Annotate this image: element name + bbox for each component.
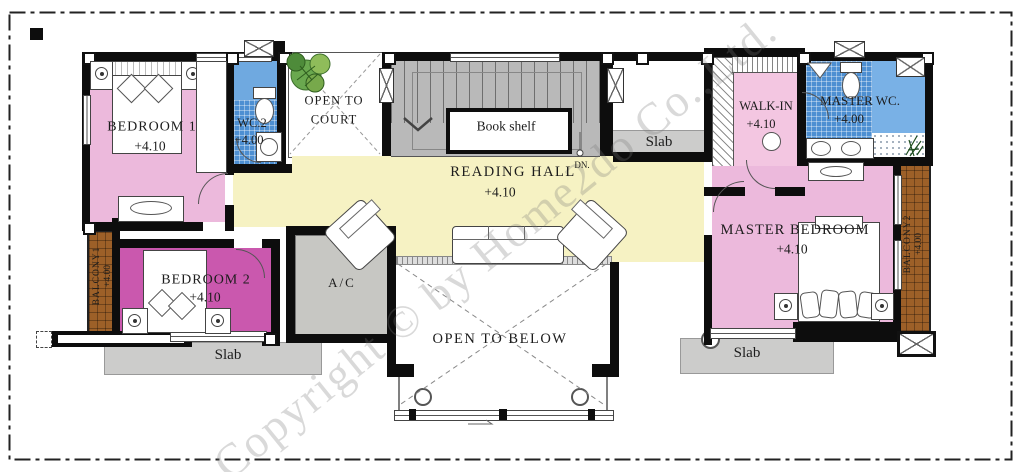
wall [271, 239, 280, 340]
floor-plan: Copyright © by Home2do Co.,Ltd. BEDROOM … [0, 0, 1024, 472]
bay-post [499, 409, 507, 420]
dresser-bowl [130, 201, 172, 215]
master-wc-dry-area [872, 133, 925, 157]
column-marker [83, 222, 96, 235]
vent-shaft-icon [379, 68, 394, 103]
master-bedroom-label: MASTER BEDROOM [721, 223, 870, 239]
wall [286, 226, 295, 343]
reading-hall-label: READING HALL [450, 165, 576, 181]
sofa-back-cushions [452, 226, 562, 240]
wall [112, 239, 234, 248]
lamp-icon [875, 299, 888, 312]
vent-shaft-icon [607, 68, 624, 103]
pillow-icon [818, 289, 839, 319]
corner-marker [30, 28, 43, 40]
dn-label: DN. [574, 161, 589, 171]
lamp-icon [95, 67, 108, 80]
wall [704, 48, 805, 57]
master-bedroom-level: +4.10 [776, 243, 807, 258]
balcony1-level: +4.00 [103, 265, 113, 287]
open-to-below-label: OPEN TO BELOW [433, 332, 568, 348]
lamp-icon [211, 314, 224, 327]
window [83, 95, 91, 145]
open-to-court-label: OPEN TO COURT [294, 91, 374, 129]
vent-shaft-icon [896, 57, 925, 77]
column-marker [601, 52, 614, 65]
walk-in-shelves-top [732, 57, 800, 73]
bed-headboard [108, 61, 186, 76]
walk-in-label: WALK-IN [739, 100, 792, 114]
planter-bar-inner [58, 335, 184, 343]
master-wc-label: MASTER WC. [820, 94, 900, 108]
sink-bowl [811, 141, 831, 156]
balcony2-vent-icon [897, 331, 936, 357]
walk-in-level: +4.10 [747, 118, 776, 132]
column-marker [701, 52, 714, 65]
bedroom1-label: BEDROOM 1 [107, 119, 197, 134]
column-marker [383, 52, 396, 65]
bedroom2-label: BEDROOM 2 [161, 272, 251, 287]
pillow-icon [838, 290, 859, 319]
slab-lower-right-label: Slab [734, 345, 761, 362]
bay-post [409, 409, 416, 420]
wc2-label: WC.2 [237, 117, 267, 131]
wall [925, 52, 933, 166]
balcony2-level: +4.00 [914, 233, 924, 255]
window [894, 240, 902, 290]
planter-stub [36, 331, 52, 348]
wall [387, 226, 396, 377]
wall [613, 52, 712, 61]
wardrobe-icon [196, 61, 227, 173]
vent-shaft-icon [244, 40, 274, 57]
reading-hall-level: +4.10 [484, 186, 515, 201]
column-marker [226, 52, 239, 65]
open-to-below-room [396, 262, 610, 364]
wall [82, 222, 203, 231]
ac-room-label: A/C [328, 276, 356, 290]
master-wc-level: +4.00 [834, 112, 864, 126]
wall [704, 52, 712, 162]
wall [225, 205, 234, 231]
wall [775, 187, 805, 196]
stool-icon [762, 132, 781, 151]
window [710, 328, 796, 339]
bay-column [414, 388, 432, 406]
lamp-icon [128, 314, 141, 327]
sink-bowl [841, 141, 861, 156]
wall [387, 364, 414, 377]
slab-upper-label: Slab [646, 134, 673, 151]
vent-shaft-icon [834, 41, 865, 58]
lamp-icon [779, 299, 792, 312]
column-marker [264, 333, 277, 346]
bay-post [588, 409, 595, 420]
wall [610, 262, 619, 377]
wall [592, 364, 619, 377]
column-marker [278, 52, 291, 65]
wall [613, 152, 712, 162]
window [894, 175, 902, 225]
balcony2-label: BALCONY2 [903, 215, 913, 274]
slab-lower-left-label: Slab [215, 347, 242, 364]
window [450, 53, 560, 62]
wall [286, 334, 396, 343]
bay-column [571, 388, 589, 406]
dresser-bowl [820, 166, 852, 177]
wall [793, 322, 897, 342]
bedroom1-level: +4.10 [134, 140, 165, 155]
book-shelf-label: Book shelf [477, 120, 536, 135]
wc2-level: +4.00 [235, 134, 264, 148]
bedroom2-level: +4.10 [189, 291, 220, 306]
balcony1-label: BALCONY1 [92, 247, 102, 306]
hall-corridor-floor [233, 173, 292, 227]
column-marker [636, 52, 649, 65]
column-marker [798, 52, 811, 65]
pillow-icon [799, 291, 820, 319]
wall [112, 218, 120, 333]
